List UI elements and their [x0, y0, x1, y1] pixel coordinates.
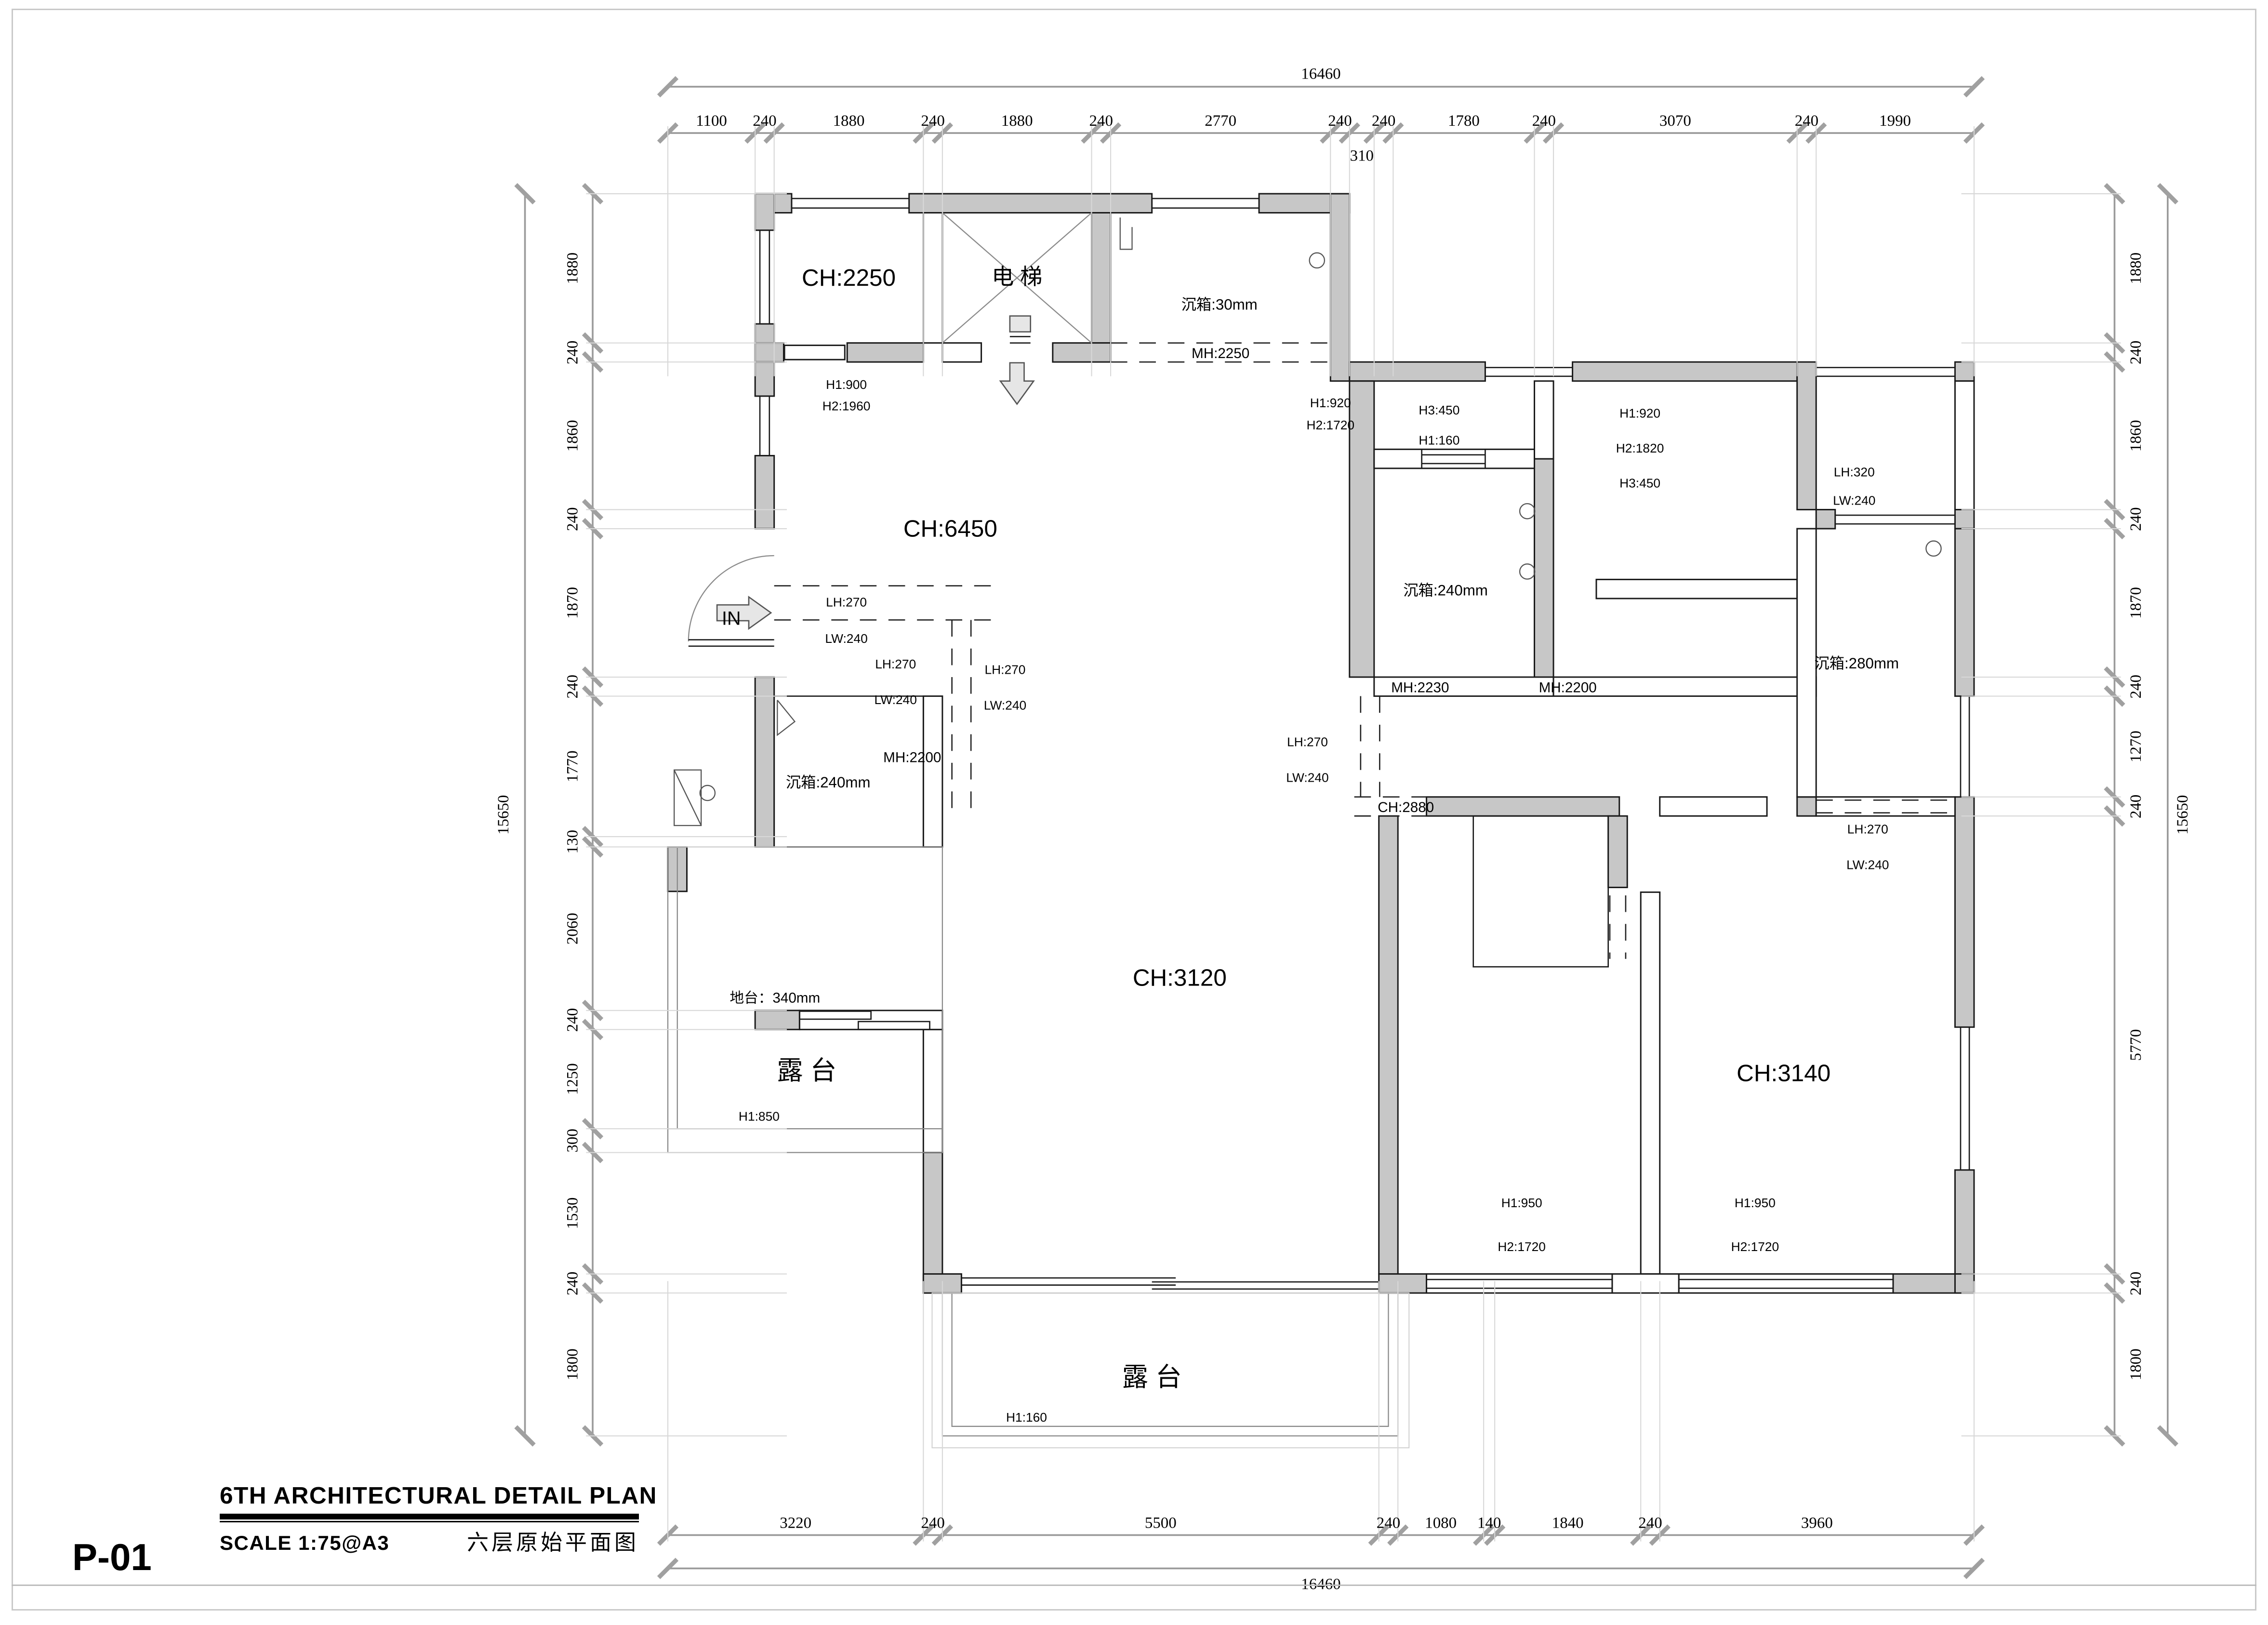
dim-number: 2060 — [564, 913, 582, 945]
dim-total: 15650 — [2174, 795, 2191, 835]
annotation: H2:1960 — [822, 399, 871, 413]
dim-number: 240 — [753, 112, 776, 130]
dim-number: 1100 — [696, 112, 727, 130]
dim-number: 240 — [921, 1515, 944, 1532]
dim-number: 1800 — [564, 1348, 582, 1380]
annotation: H1:160 — [1419, 433, 1459, 447]
drawing-title-chinese: 六层原始平面图 — [467, 1527, 639, 1557]
dim-number: 240 — [1089, 112, 1113, 130]
wall — [1797, 797, 1817, 816]
wall — [1330, 194, 1350, 381]
title-rule-thick — [220, 1514, 639, 1519]
annotation: H2:1720 — [1731, 1239, 1779, 1254]
drawing-title: 6TH ARCHITECTURAL DETAIL PLAN — [220, 1483, 639, 1511]
annotation: CH:2880 — [1378, 799, 1434, 815]
wall-light — [942, 343, 981, 362]
drawing-scale: SCALE 1:75@A3 — [220, 1531, 389, 1554]
room-label: CH:2250 — [802, 265, 896, 291]
annotation: H3:450 — [1419, 403, 1459, 417]
dim-number: 1870 — [564, 587, 582, 619]
annotation: LW:240 — [875, 693, 917, 707]
dim-number: 240 — [1638, 1515, 1662, 1532]
annotation: MH:2230 — [1391, 679, 1449, 695]
dim-number: 1990 — [1879, 112, 1911, 130]
wall-light — [1612, 1274, 1679, 1293]
annotation: MH:2200 — [1539, 679, 1597, 695]
elevator-shaft — [942, 213, 1092, 404]
room-label-terrace: 露 台 — [777, 1056, 836, 1085]
dim-number: 240 — [564, 341, 582, 364]
room-label-elevator: 电 梯 — [992, 264, 1042, 289]
floor-plan: IN CH:2250 电 梯 沉箱:30mm MH:2250 H1:900 H2… — [495, 66, 2191, 1593]
annotation: 地台：340mm — [730, 990, 821, 1006]
annotation: H1:920 — [1310, 396, 1351, 410]
wall — [1955, 1274, 1974, 1293]
dim-number: 1770 — [564, 750, 582, 782]
wall — [1535, 459, 1554, 677]
annotations: CH:2250 电 梯 沉箱:30mm MH:2250 H1:900 H2:19… — [730, 264, 1899, 1425]
wall-light — [1797, 529, 1817, 797]
dim-number: 240 — [1372, 112, 1395, 130]
wall-light — [923, 696, 942, 847]
dim-number: 240 — [2127, 795, 2145, 818]
wall-light — [1596, 579, 1797, 599]
dim-total: 15650 — [495, 795, 512, 835]
dim-number: 1800 — [2127, 1348, 2145, 1380]
elevator-symbol — [1010, 316, 1031, 332]
wall — [909, 194, 1152, 213]
annotation: H1:160 — [1006, 1410, 1047, 1425]
wall — [1427, 797, 1619, 816]
annotation: LW:240 — [1286, 770, 1328, 785]
entry-door: IN — [689, 556, 774, 646]
dim-number: 3960 — [1801, 1515, 1833, 1532]
room-label: CH:6450 — [903, 516, 997, 542]
title-rule-thin — [220, 1521, 639, 1522]
dim-number: 1840 — [1552, 1515, 1584, 1532]
annotation: H1:850 — [739, 1109, 780, 1124]
dim-number: 240 — [1328, 112, 1352, 130]
annotation: H1:950 — [1735, 1196, 1776, 1210]
annotation: LH:270 — [984, 662, 1025, 677]
dim-number: 240 — [1532, 112, 1556, 130]
wall — [755, 362, 774, 396]
annotation: H1:900 — [826, 377, 867, 392]
room-label-terrace: 露 台 — [1122, 1362, 1182, 1392]
dim-number: 240 — [1377, 1515, 1400, 1532]
dim-number: 1880 — [2127, 253, 2145, 284]
wall — [847, 343, 923, 362]
dim-number: 240 — [564, 1008, 582, 1032]
sheet-footer-line — [12, 1585, 2256, 1586]
wall — [1608, 816, 1628, 887]
dim-number: 240 — [921, 112, 944, 130]
annotation: H1:950 — [1501, 1196, 1542, 1210]
wall — [755, 1011, 799, 1030]
dim-number: 310 — [1350, 147, 1374, 165]
dim-number: 300 — [564, 1129, 582, 1152]
closet-outline — [1473, 816, 1608, 967]
wall — [1053, 343, 1111, 362]
wall — [755, 677, 774, 847]
wall — [755, 456, 774, 529]
annotation: LH:270 — [875, 657, 916, 671]
annotation: LH:320 — [1834, 465, 1875, 479]
wall-light — [1955, 381, 1974, 510]
wall — [923, 1153, 942, 1293]
fixture-marks — [700, 217, 1941, 800]
wall — [1955, 529, 1974, 696]
porch-diagonal — [674, 770, 701, 826]
annotation: LW:240 — [1833, 493, 1875, 508]
dim-number: 1880 — [564, 253, 582, 284]
wall — [1573, 362, 1797, 381]
in-label: IN — [722, 608, 741, 629]
dim-number: 1880 — [833, 112, 865, 130]
annotation: LW:240 — [1846, 858, 1889, 872]
wall — [1091, 213, 1111, 343]
wall — [1955, 1170, 1974, 1274]
wall-light — [923, 213, 942, 343]
wall — [774, 194, 792, 213]
dim-number: 240 — [1795, 112, 1818, 130]
drawing-sheet: IN CH:2250 电 梯 沉箱:30mm MH:2250 H1:900 H2… — [0, 0, 2268, 1625]
dim-number: 240 — [2127, 1272, 2145, 1295]
title-block: 6TH ARCHITECTURAL DETAIL PLAN SCALE 1:75… — [220, 1483, 639, 1557]
annotation: LW:240 — [984, 698, 1026, 713]
floor-plan-svg: IN CH:2250 电 梯 沉箱:30mm MH:2250 H1:900 H2… — [0, 0, 2268, 1625]
wall — [1379, 1274, 1427, 1293]
dim-total: 16460 — [1301, 66, 1340, 83]
annotation: H3:450 — [1619, 476, 1660, 490]
dim-number: 1880 — [1001, 112, 1033, 130]
dim-number: 240 — [564, 1272, 582, 1295]
dim-number: 1860 — [564, 420, 582, 452]
annotation: 沉箱:240mm — [786, 774, 871, 791]
dim-number: 1780 — [1448, 112, 1480, 130]
annotation: 沉箱:280mm — [1814, 655, 1899, 672]
dim-number: 240 — [564, 675, 582, 698]
wall — [755, 343, 783, 362]
wall — [1955, 362, 1974, 381]
sheet-number: P-01 — [72, 1535, 152, 1580]
wall-light — [1660, 797, 1767, 816]
wall — [1955, 510, 1974, 529]
dim-number: 240 — [564, 507, 582, 531]
dim-number: 1250 — [564, 1063, 582, 1095]
wall — [1797, 362, 1817, 509]
annotation: 沉箱:30mm — [1181, 296, 1258, 313]
wall-light — [1374, 449, 1535, 468]
annotation: 沉箱:240mm — [1403, 582, 1488, 599]
dim-number: 5770 — [2127, 1029, 2145, 1061]
annotation: MH:2200 — [883, 749, 941, 765]
dim-number: 240 — [2127, 341, 2145, 364]
terraces — [668, 847, 1409, 1448]
wall-light — [1641, 892, 1660, 1274]
wall — [755, 194, 774, 230]
room-label: CH:3120 — [1133, 965, 1227, 991]
annotation: H2:1720 — [1306, 418, 1354, 432]
wall — [1350, 362, 1485, 381]
annotation: LW:240 — [825, 631, 867, 646]
dim-number: 1860 — [2127, 420, 2145, 452]
dim-number: 3220 — [780, 1515, 811, 1532]
room-outline — [774, 696, 924, 847]
down-arrow-icon — [1000, 363, 1034, 404]
dim-number: 5500 — [1145, 1515, 1177, 1532]
dim-number: 240 — [2127, 507, 2145, 531]
annotation: H2:1820 — [1616, 441, 1664, 455]
annotation: LH:270 — [826, 595, 867, 609]
wall — [1955, 797, 1974, 1027]
dim-number: 240 — [2127, 675, 2145, 698]
dim-number: 140 — [1477, 1515, 1501, 1532]
wall-light — [1679, 1274, 1893, 1293]
annotation: LH:270 — [1847, 822, 1888, 836]
wall-light — [1427, 1274, 1612, 1293]
dim-number: 1870 — [2127, 587, 2145, 619]
room-label: CH:3140 — [1737, 1060, 1830, 1086]
dim-number: 130 — [564, 830, 582, 853]
door-panel — [784, 346, 845, 360]
dim-number: 2770 — [1205, 112, 1236, 130]
dim-number: 1080 — [1425, 1515, 1457, 1532]
wall — [1379, 816, 1398, 1274]
annotation: H1:920 — [1619, 406, 1660, 420]
dim-number: 3070 — [1659, 112, 1691, 130]
dim-number: 1530 — [564, 1198, 582, 1229]
annotation: LH:270 — [1287, 734, 1328, 749]
wall-light — [1535, 381, 1554, 459]
annotation: MH:2250 — [1192, 346, 1249, 361]
wall — [1816, 510, 1835, 529]
wall-light — [923, 1029, 942, 1152]
annotation: H2:1720 — [1498, 1239, 1546, 1254]
dim-number: 1270 — [2127, 731, 2145, 762]
